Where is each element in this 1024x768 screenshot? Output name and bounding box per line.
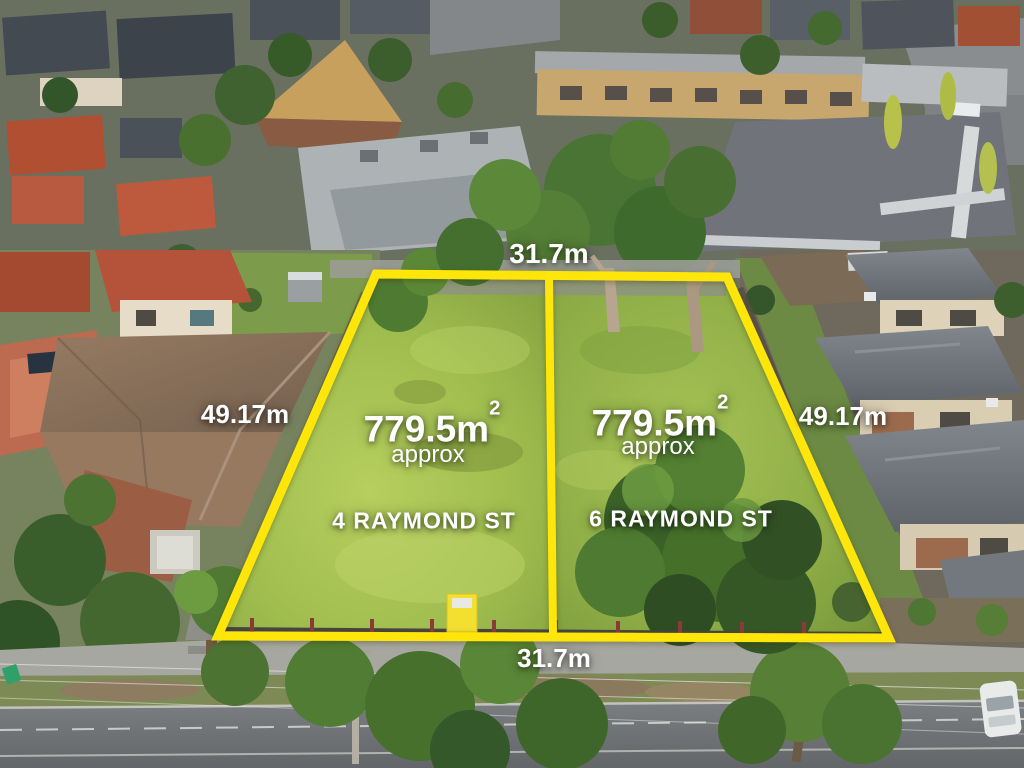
lot-2-area-qualifier: approx (621, 435, 694, 459)
right-depth-label: 49.17m (799, 403, 887, 429)
lot-divider-line (549, 278, 553, 633)
bottom-width-label: 31.7m (517, 645, 591, 671)
aerial-photo: 31.7m 49.17m 49.17m 31.7m 779.5m2 approx… (0, 0, 1024, 768)
top-width-label: 31.7m (509, 240, 588, 268)
left-depth-label: 49.17m (201, 401, 289, 427)
lot-2-area-exponent: 2 (717, 392, 728, 414)
lot-1-area-exponent: 2 (489, 398, 500, 420)
lot-boundary-overlay (0, 0, 1024, 768)
lot-1-area-qualifier: approx (391, 443, 464, 467)
lot-2-address-label: 6 RAYMOND ST (589, 508, 773, 531)
lot-1-address-label: 4 RAYMOND ST (332, 510, 516, 533)
